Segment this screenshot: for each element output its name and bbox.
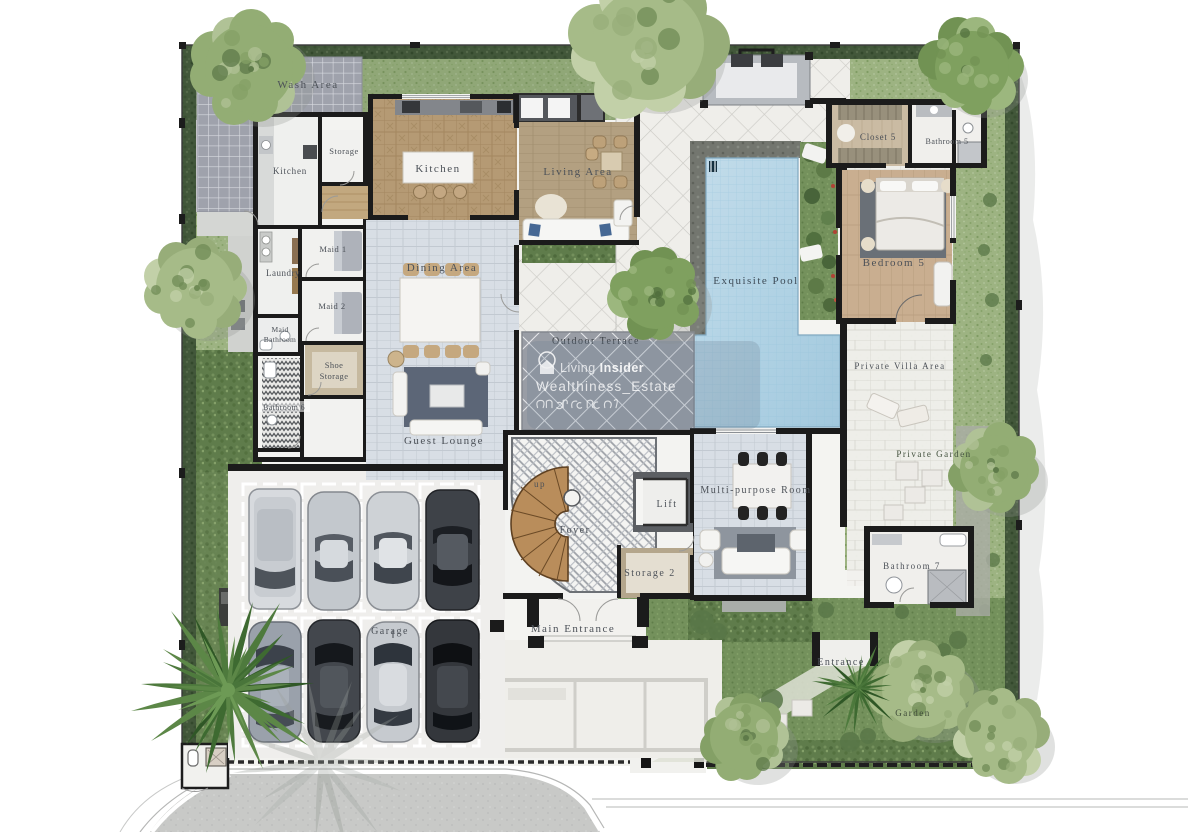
svg-text:Exquisite Pool: Exquisite Pool bbox=[713, 275, 798, 287]
svg-text:Storage 2: Storage 2 bbox=[624, 568, 676, 579]
svg-text:Shoe: Shoe bbox=[325, 360, 344, 370]
svg-text:Bedroom 5: Bedroom 5 bbox=[863, 257, 926, 269]
svg-text:Maid: Maid bbox=[271, 325, 288, 334]
svg-text:Dining Area: Dining Area bbox=[407, 262, 478, 274]
svg-text:Wealthiness_Estate: Wealthiness_Estate bbox=[536, 379, 677, 394]
svg-text:Wash Area: Wash Area bbox=[277, 79, 338, 91]
svg-text:Entrance: Entrance bbox=[817, 657, 865, 668]
svg-text:Bathroom 7: Bathroom 7 bbox=[883, 561, 941, 571]
svg-text:Bathroom 6: Bathroom 6 bbox=[263, 403, 305, 412]
svg-text:Multi-purpose Room: Multi-purpose Room bbox=[700, 485, 811, 496]
svg-text:Maid 1: Maid 1 bbox=[319, 244, 346, 254]
svg-text:Guest Lounge: Guest Lounge bbox=[404, 435, 484, 447]
svg-text:Foyer: Foyer bbox=[560, 525, 591, 536]
svg-text:Storage: Storage bbox=[329, 146, 358, 156]
svg-text:Kitchen: Kitchen bbox=[415, 163, 460, 175]
svg-text:Bathroom 5: Bathroom 5 bbox=[926, 137, 969, 146]
svg-text:up: up bbox=[534, 479, 546, 489]
svg-text:Garage: Garage bbox=[371, 626, 409, 637]
svg-text:Private Garden: Private Garden bbox=[896, 449, 971, 459]
svg-text:Living Area: Living Area bbox=[543, 166, 612, 178]
svg-text:Main Entrance: Main Entrance bbox=[531, 623, 616, 635]
svg-text:Garden: Garden bbox=[895, 708, 931, 718]
svg-text:Bathroom: Bathroom bbox=[264, 335, 296, 344]
svg-text:Maid 2: Maid 2 bbox=[318, 301, 345, 311]
svg-text:Lift: Lift bbox=[657, 499, 678, 510]
svg-text:Laundry: Laundry bbox=[266, 268, 300, 278]
svg-text:Private Villa Area: Private Villa Area bbox=[854, 361, 945, 371]
svg-text:Storage: Storage bbox=[320, 371, 349, 381]
svg-text:Living Insider: Living Insider bbox=[560, 361, 644, 375]
svg-text:Closet 5: Closet 5 bbox=[860, 132, 896, 142]
svg-text:Kitchen: Kitchen bbox=[273, 166, 307, 176]
